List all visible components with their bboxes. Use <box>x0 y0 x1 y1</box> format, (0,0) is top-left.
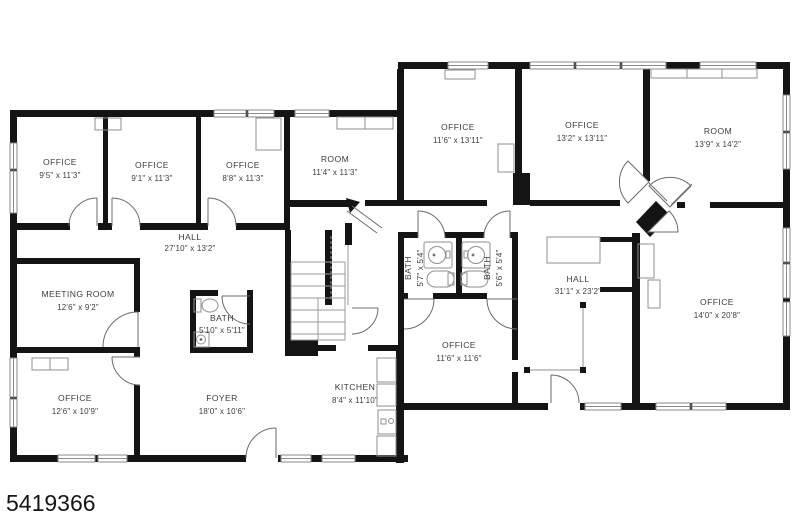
svg-text:BATH: BATH <box>210 313 234 323</box>
svg-text:KITCHEN: KITCHEN <box>335 382 376 392</box>
svg-text:HALL: HALL <box>178 232 201 242</box>
svg-text:BATH: BATH <box>482 256 492 280</box>
svg-text:OFFICE: OFFICE <box>441 122 475 132</box>
svg-text:5'6" x 5'4": 5'6" x 5'4" <box>495 249 504 286</box>
svg-text:14'0" x 20'8": 14'0" x 20'8" <box>694 311 740 320</box>
svg-text:5'7" x 5'4": 5'7" x 5'4" <box>416 249 425 286</box>
svg-text:5'10" x 5'11": 5'10" x 5'11" <box>199 326 245 335</box>
svg-text:OFFICE: OFFICE <box>135 160 169 170</box>
floor-plan-page: OFFICE9'5" x 11'3" OFFICE9'1" x 11'3" OF… <box>0 0 800 527</box>
svg-text:12'6" x 10'9": 12'6" x 10'9" <box>52 407 98 416</box>
svg-text:ROOM: ROOM <box>321 154 349 164</box>
svg-text:ROOM: ROOM <box>704 126 732 136</box>
svg-text:31'1" x 23'2": 31'1" x 23'2" <box>555 287 601 296</box>
svg-text:OFFICE: OFFICE <box>43 157 77 167</box>
svg-text:12'6" x 9'2": 12'6" x 9'2" <box>57 303 99 312</box>
svg-text:8'8" x 11'3": 8'8" x 11'3" <box>222 174 263 183</box>
svg-text:11'6" x 11'6": 11'6" x 11'6" <box>436 354 481 363</box>
svg-text:OFFICE: OFFICE <box>565 120 599 130</box>
svg-text:11'6" x 13'11": 11'6" x 13'11" <box>433 136 483 145</box>
svg-text:9'1" x 11'3": 9'1" x 11'3" <box>131 174 172 183</box>
svg-text:OFFICE: OFFICE <box>226 160 260 170</box>
svg-text:18'0" x 10'6": 18'0" x 10'6" <box>199 407 245 416</box>
svg-text:MEETING ROOM: MEETING ROOM <box>41 289 114 299</box>
svg-text:HALL: HALL <box>566 274 589 284</box>
svg-text:27'10" x 13'2": 27'10" x 13'2" <box>164 244 215 253</box>
svg-text:OFFICE: OFFICE <box>442 340 476 350</box>
svg-text:13'2" x 13'11": 13'2" x 13'11" <box>557 134 608 143</box>
svg-text:11'4" x 11'3": 11'4" x 11'3" <box>312 168 357 177</box>
svg-text:FOYER: FOYER <box>206 393 238 403</box>
svg-text:9'5" x 11'3": 9'5" x 11'3" <box>39 171 80 180</box>
svg-text:OFFICE: OFFICE <box>58 393 92 403</box>
svg-text:BATH: BATH <box>403 256 413 280</box>
svg-text:13'9" x 14'2": 13'9" x 14'2" <box>695 140 741 149</box>
floor-plan: OFFICE9'5" x 11'3" OFFICE9'1" x 11'3" OF… <box>0 0 800 527</box>
svg-text:8'4" x 11'10": 8'4" x 11'10" <box>332 396 378 405</box>
svg-text:OFFICE: OFFICE <box>700 297 734 307</box>
listing-id-watermark: 5419366 <box>6 490 96 516</box>
